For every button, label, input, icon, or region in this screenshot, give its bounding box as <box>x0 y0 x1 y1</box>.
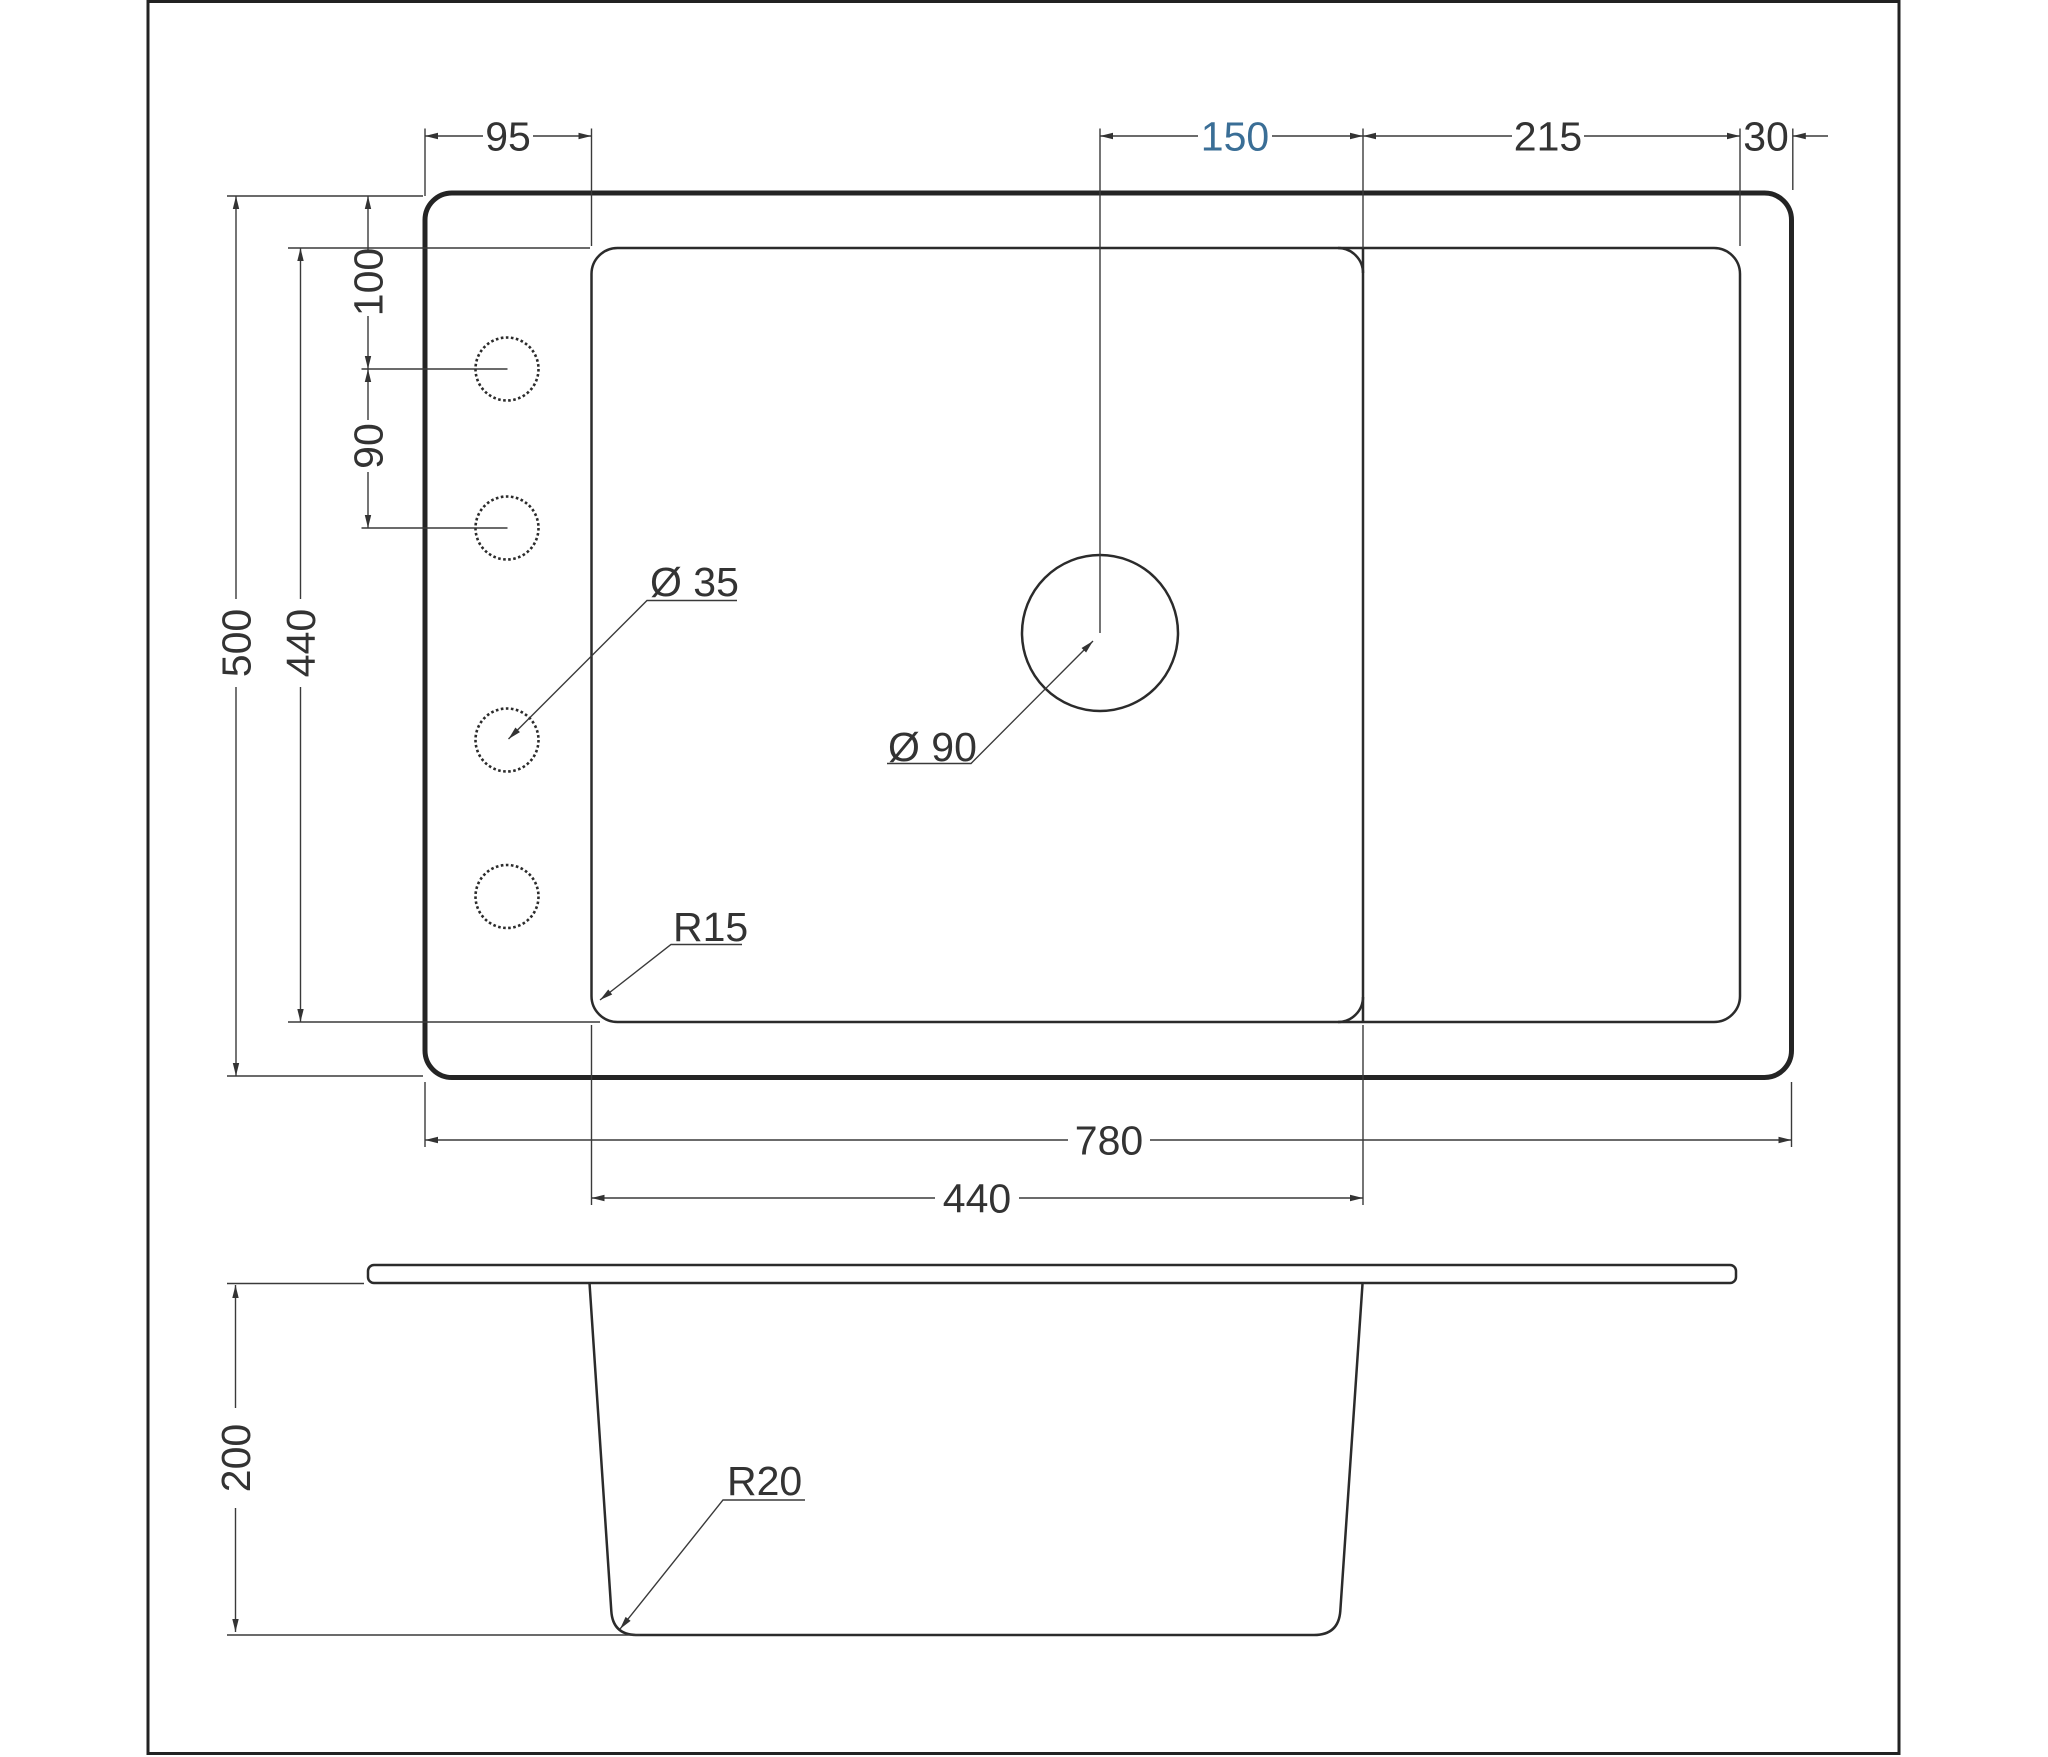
svg-text:95: 95 <box>485 114 531 160</box>
svg-text:440: 440 <box>943 1176 1011 1222</box>
svg-text:30: 30 <box>1743 114 1789 160</box>
svg-text:200: 200 <box>213 1424 259 1492</box>
svg-text:Ø 35: Ø 35 <box>650 559 739 605</box>
svg-text:150: 150 <box>1201 114 1269 160</box>
svg-text:100: 100 <box>346 248 392 316</box>
svg-text:500: 500 <box>214 609 260 677</box>
svg-text:R15: R15 <box>673 904 748 950</box>
svg-text:90: 90 <box>346 423 392 469</box>
svg-text:215: 215 <box>1514 114 1582 160</box>
svg-text:440: 440 <box>278 609 324 677</box>
svg-text:R20: R20 <box>727 1458 802 1504</box>
svg-text:780: 780 <box>1075 1118 1143 1164</box>
